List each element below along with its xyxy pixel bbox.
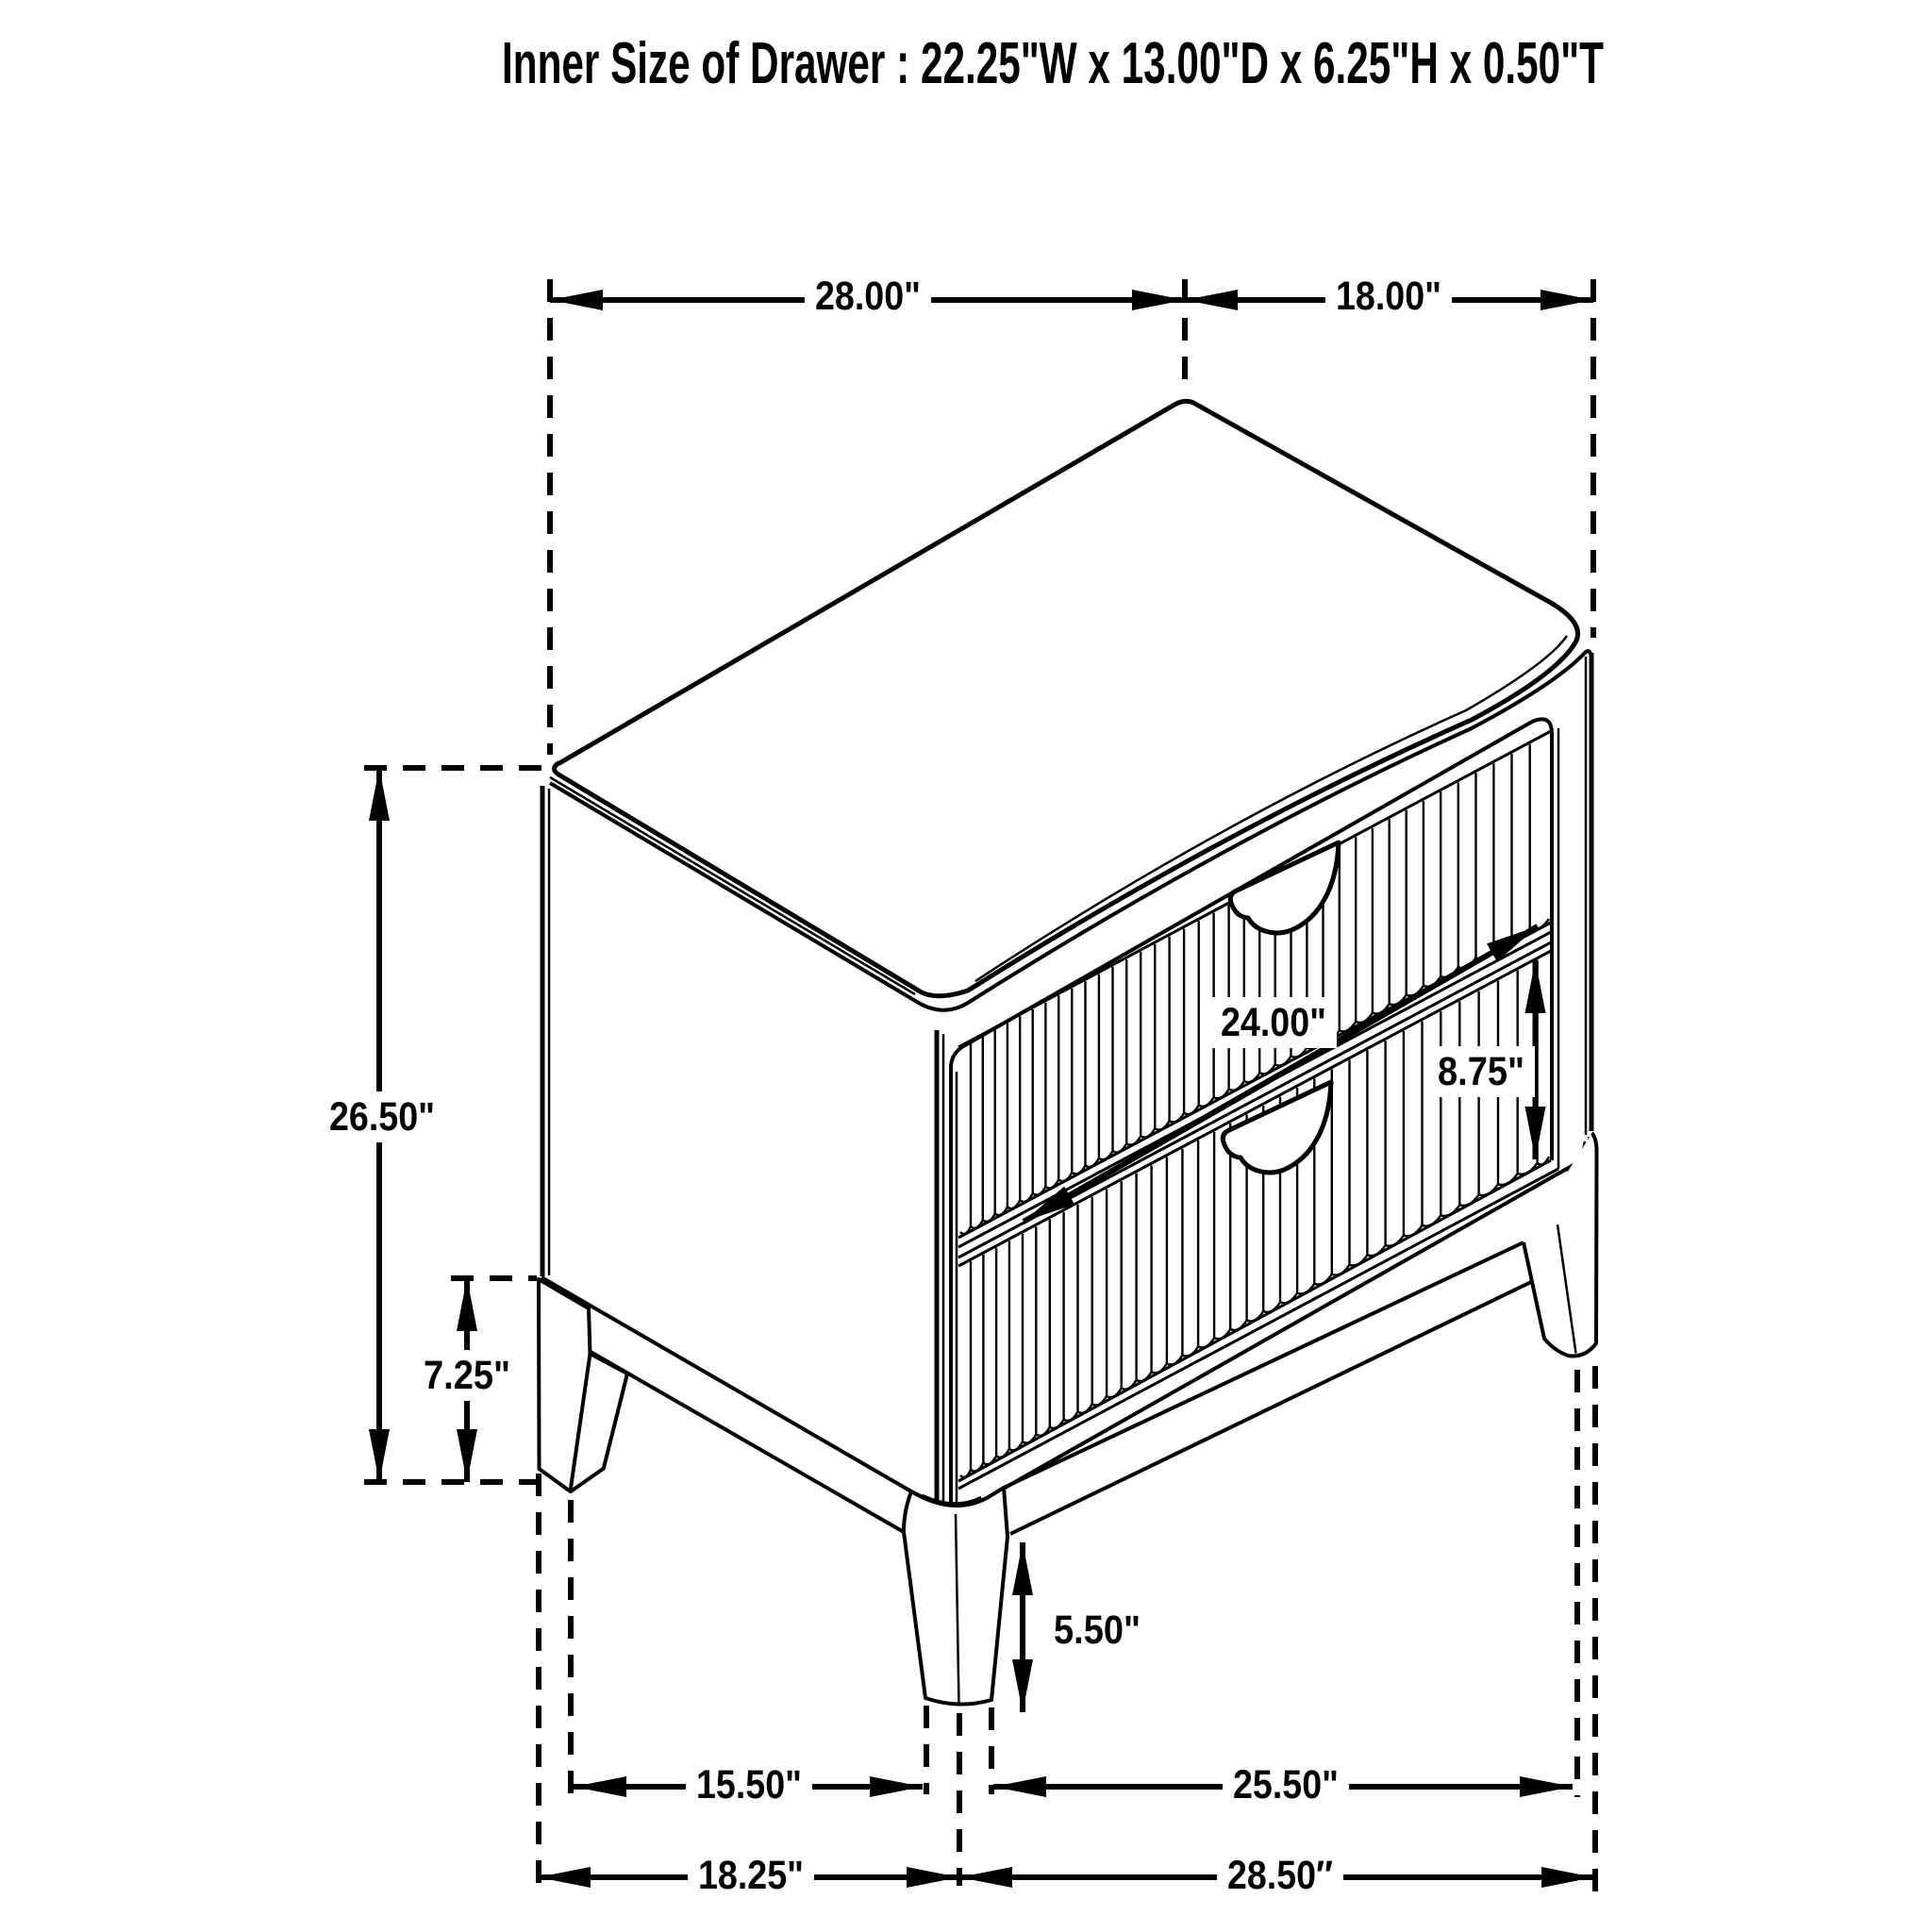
svg-text:15.50": 15.50" (696, 1762, 802, 1807)
svg-text:18.00": 18.00" (1336, 274, 1441, 319)
svg-text:28.50″: 28.50″ (1227, 1853, 1333, 1898)
svg-text:8.75": 8.75" (1438, 1049, 1524, 1094)
svg-text:Inner Size of Drawer : 22.25"W: Inner Size of Drawer : 22.25"W x 13.00"D… (502, 31, 1604, 96)
svg-text:18.25": 18.25" (698, 1853, 804, 1898)
svg-text:5.50": 5.50" (1054, 1607, 1141, 1653)
svg-text:24.00": 24.00" (1221, 1000, 1326, 1045)
svg-text:7.25": 7.25" (424, 1353, 510, 1398)
svg-text:26.50": 26.50" (329, 1094, 435, 1140)
svg-text:28.00": 28.00" (815, 274, 921, 319)
svg-text:25.50": 25.50" (1233, 1762, 1339, 1807)
